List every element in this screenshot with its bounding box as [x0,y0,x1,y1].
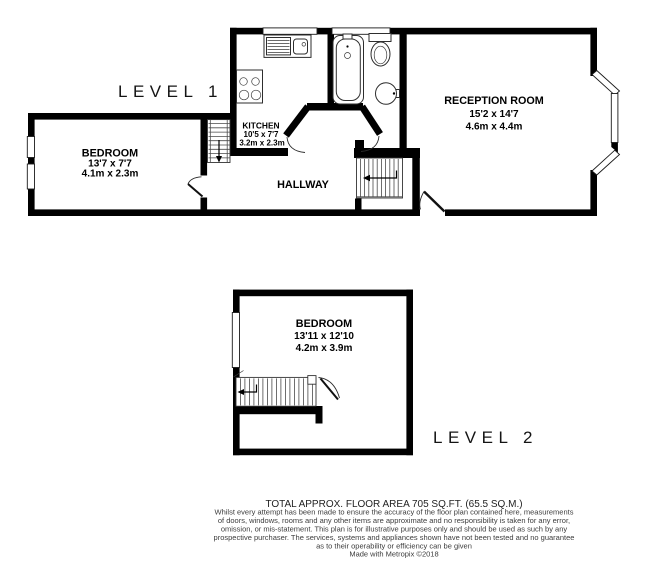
wall-segment [406,290,413,456]
drain [346,45,348,47]
room-size-metric: 4.2m x 3.9m [296,343,353,354]
bathroom-fixtures [333,34,400,105]
wall-segment [390,28,597,35]
door-leaf [188,184,203,197]
bathtub [333,34,364,104]
level2-label: LEVEL 2 [433,428,538,447]
level2-plan: LEVEL 2 [232,290,538,456]
bedroom2-label: BEDROOM 13'11 x 12'10 4.2m x 3.9m [294,318,354,354]
kitchen-label: KITCHEN 10'5 x 7'7 3.2m x 2.3m [239,121,284,148]
level1-plan: LEVEL 1 [27,28,619,216]
kitchen-sink [264,35,311,57]
front-door [420,192,445,212]
door-swing-arc [188,177,202,184]
wall-segment [230,148,288,156]
room-name: BEDROOM [296,318,352,330]
wall-segment [317,28,332,35]
angled-door-jamb [362,107,380,135]
hallway-label: HALLWAY [277,179,330,191]
kitchen-fixtures [237,35,312,103]
wall-segment [400,34,407,155]
level2-walls [233,290,413,456]
footer: TOTAL APPROX. FLOOR AREA 705 SQ.FT. (65.… [214,499,575,559]
wall-segment [233,449,413,456]
wall-segment [354,148,420,158]
room-size-imperial: 15'2 x 14'7 [469,109,519,120]
room-name: RECEPTION ROOM [444,95,544,107]
credit-text: Made with Metropix ©2018 [349,550,438,559]
kitchen-door-swing-arc [287,137,305,153]
door-swing-arc [420,192,424,210]
wall-segment [233,290,413,297]
room-size-imperial: 13'11 x 12'10 [294,331,354,342]
wall-segment [28,209,420,216]
bedroom1-label: BEDROOM 13'7 x 7'7 4.1m x 2.3m [82,148,139,180]
angled-door-jamb [286,107,308,136]
staircase-up [355,158,403,210]
wall-segment [28,158,35,165]
floorplan-page: LEVEL 1 [0,0,650,563]
bay-window [611,94,618,143]
bedroom-door [188,177,203,197]
wall-segment [445,209,597,216]
bay-window [592,71,620,96]
wall-segment [28,113,230,120]
toilet [369,34,391,67]
wall-segment [412,158,420,216]
bedroom2-window [232,313,239,368]
newel-post [308,376,316,385]
staircase-down [208,120,231,163]
room-size-metric: 4.1m x 2.3m [82,169,139,180]
stove [237,70,263,103]
tap [393,92,395,94]
room-size-metric: 4.6m x 4.4m [466,122,523,133]
kitchen-window [263,28,317,34]
level1-label: LEVEL 1 [118,82,223,101]
wall-segment [590,28,597,76]
bedroom-window [27,137,34,158]
wall-segment [316,414,323,424]
floorplan-image: LEVEL 1 [0,0,650,563]
wall-segment [201,113,208,176]
door-leaf [424,192,445,212]
wall-segment [355,199,362,210]
room-size-metric: 3.2m x 2.3m [239,139,284,148]
wall-segment [28,113,35,137]
reception-label: RECEPTION ROOM 15'2 x 14'7 4.6m x 4.4m [444,95,544,133]
wall-segment [233,290,240,313]
staircase-level2 [234,371,317,407]
wall-segment [230,28,237,156]
bedroom2-door [319,378,340,400]
wall-segment [233,406,323,414]
bedroom-window [27,164,34,189]
bay-window [592,150,620,175]
wall-segment [590,170,597,216]
room-name: KITCHEN [242,121,279,131]
wash-basin [376,83,400,105]
